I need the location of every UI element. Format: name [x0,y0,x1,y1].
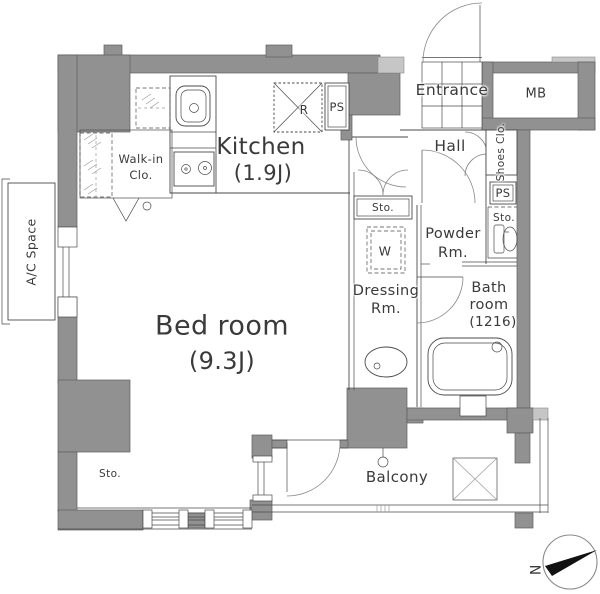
label-hall: Hall [434,137,465,155]
balcony-drain-hatch [377,505,389,512]
hose-bib-icon [378,457,388,467]
balcony-door-arc [287,443,340,496]
sink-faucet-icon [190,104,199,113]
label-bedroom: Bed room [155,311,289,342]
label-sto-toilet: Sto. [493,212,515,224]
label-mb: MB [526,87,547,102]
label-bedroom-size: (9.3J) [189,347,255,375]
label-dressing-1: Dressing [353,283,419,299]
label-ps-kitchen: PS [329,100,344,114]
floorplan-page: Bed room (9.3J) Kitchen (1.9J) Walk-in C… [0,0,600,594]
sanitary-block [349,140,517,416]
label-sto-bedroom: Sto. [99,468,121,480]
toilet-tank [494,225,504,253]
label-kitchen-size: (1.9J) [234,161,292,185]
label-bath-1: Bath [471,280,506,296]
bath-door-arc [417,277,463,323]
floorplan-svg [0,0,600,594]
toilet-bowl [503,227,517,251]
label-entrance: Entrance [416,81,489,99]
label-bath-3: (1216) [469,314,516,330]
powder-door-arc [422,150,475,203]
label-ac-space: A/C Space [24,218,39,285]
north-arrow-icon [545,550,597,576]
walkin-door [113,198,139,221]
label-walkin-2: Clo. [129,168,152,182]
ac-sleeve-icon [143,202,151,210]
entrance-area [400,3,486,130]
label-dressing-2: Rm. [371,301,401,317]
washbasin [365,347,407,377]
label-washer: W [379,244,392,259]
label-ps-hall: PS [495,186,510,200]
compass [543,535,597,589]
kitchen-stove [174,152,214,186]
label-sto-kitchen: Sto. [372,202,394,214]
label-powder-1: Powder [425,226,480,242]
label-shoes-closet: Shoes Clo. [495,123,507,182]
label-refrigerator: R [300,103,309,117]
bath-drain-box [460,396,486,416]
label-balcony: Balcony [366,468,428,486]
bathtub [428,338,512,395]
entrance-door-arc [423,3,482,62]
shoes-door-arc [465,132,487,154]
label-powder-2: Rm. [438,245,468,261]
refrigerator-space [274,83,322,132]
label-kitchen: Kitchen [216,134,305,160]
label-compass-north: N [526,565,542,576]
sto-kitchen-doors [358,170,383,195]
label-walkin-1: Walk-in [119,152,164,166]
label-bath-2: room [469,297,508,313]
kitchen-hall-door-arc [356,137,406,187]
